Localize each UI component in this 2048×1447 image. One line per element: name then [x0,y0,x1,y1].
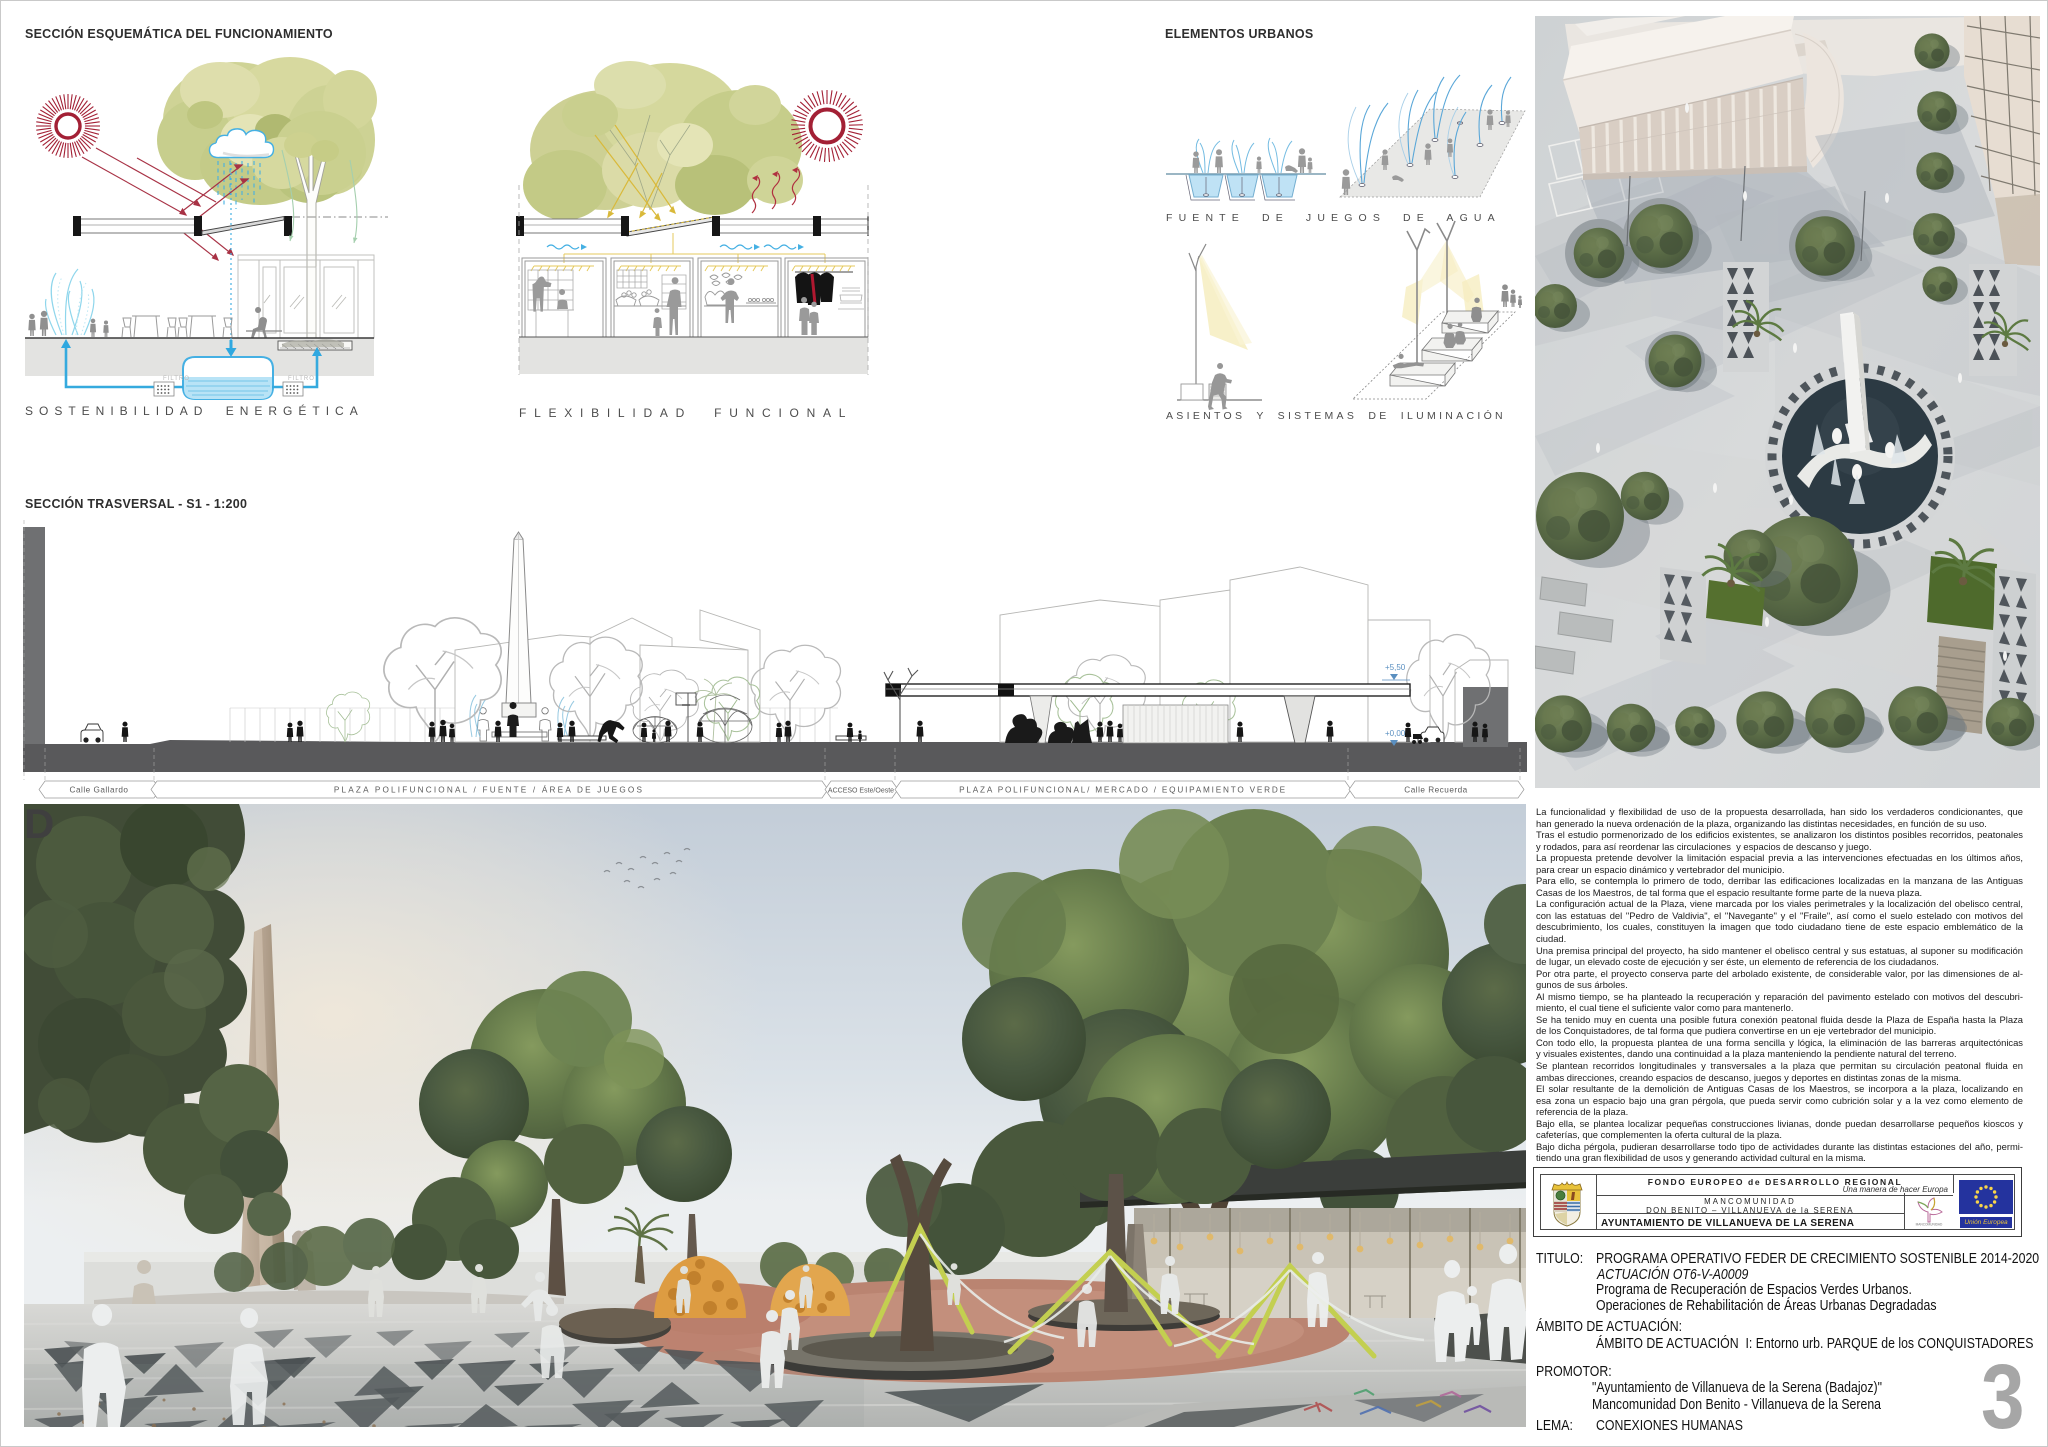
svg-text:Calle Recuerda: Calle Recuerda [1404,786,1467,795]
svg-text:MANCOMUNIDAD: MANCOMUNIDAD [1916,1223,1943,1227]
svg-text:+5,50: +5,50 [1385,663,1406,672]
svg-text:PLAZA POLIFUNCIONAL/ MERCADO /: PLAZA POLIFUNCIONAL/ MERCADO / EQUIPAMIE… [959,786,1287,795]
svg-text:+0,00: +0,00 [1385,729,1406,738]
svg-text:ACCESO Este/Oeste: ACCESO Este/Oeste [828,788,894,795]
svg-text:FILTRO: FILTRO [163,376,190,382]
svg-text:D: D [24,804,54,847]
svg-text:Calle Gallardo: Calle Gallardo [70,786,129,795]
svg-text:PLAZA POLIFUNCIONAL / FUENTE /: PLAZA POLIFUNCIONAL / FUENTE / ÁREA DE J… [334,785,644,795]
svg-text:FILTRO: FILTRO [288,376,315,382]
